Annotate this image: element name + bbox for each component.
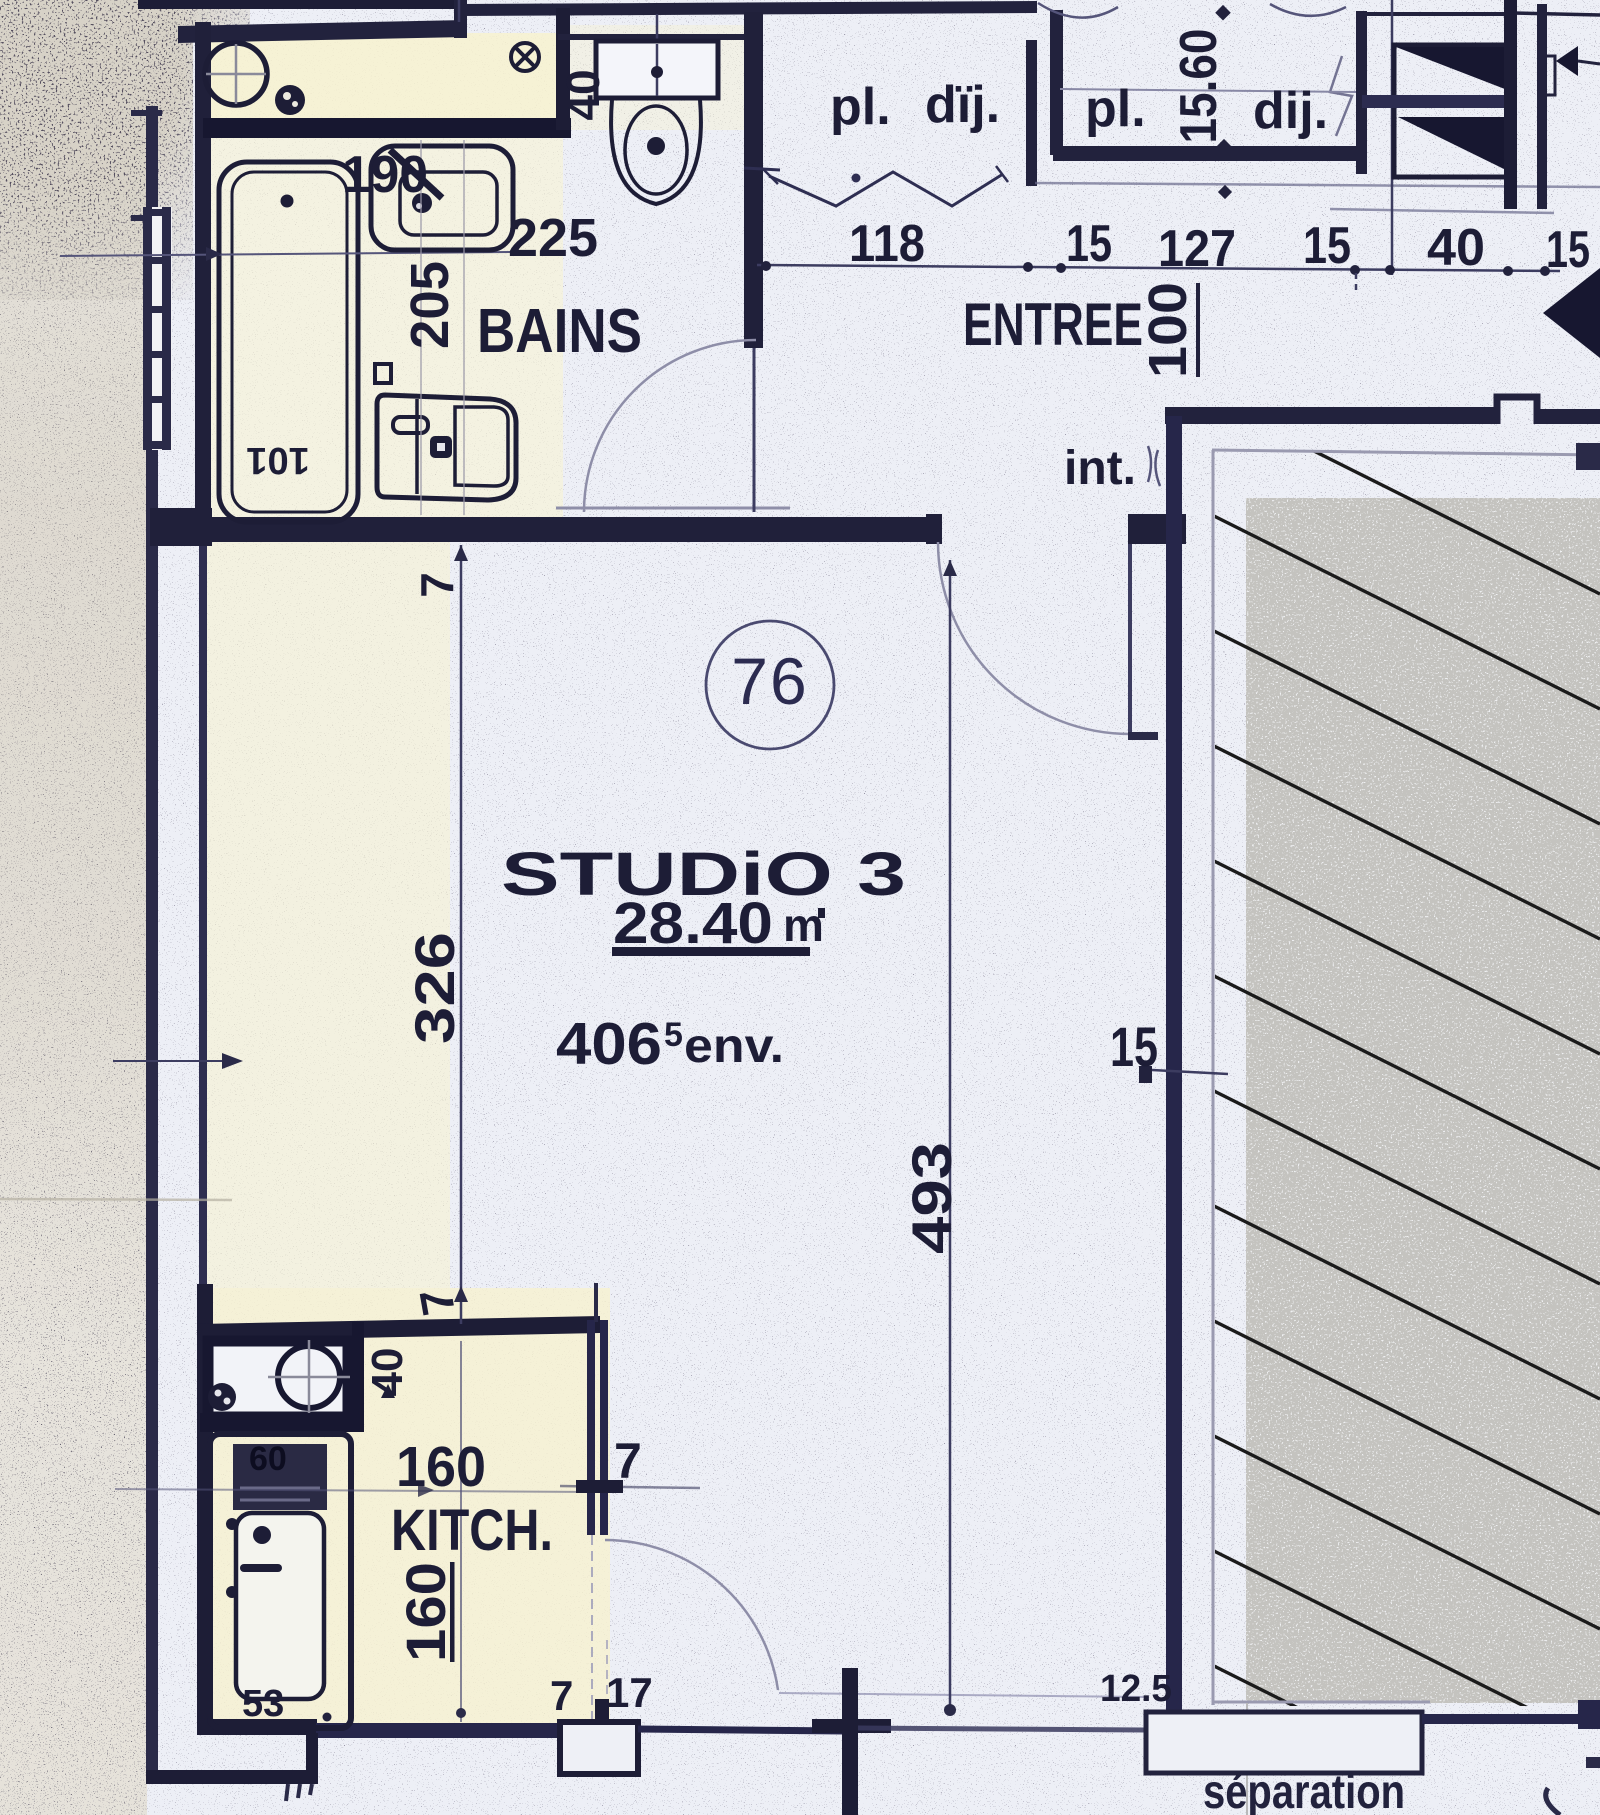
svg-text:pl.: pl. <box>830 78 891 136</box>
svg-text:15: 15 <box>1066 215 1112 273</box>
svg-text:101: 101 <box>246 439 309 481</box>
svg-text:12.5: 12.5 <box>1100 1668 1172 1710</box>
svg-text:76: 76 <box>731 644 808 718</box>
svg-text:53: 53 <box>242 1683 284 1725</box>
svg-text:KITCH.: KITCH. <box>391 1498 553 1563</box>
svg-text:m: m <box>783 899 824 951</box>
svg-text:15: 15 <box>1110 1015 1158 1078</box>
svg-text:dij.: dij. <box>1253 82 1328 140</box>
svg-text:40: 40 <box>557 69 609 120</box>
svg-text:28.40: 28.40 <box>613 891 773 956</box>
svg-text:225: 225 <box>508 208 598 268</box>
svg-text:15: 15 <box>1546 221 1590 279</box>
svg-text:160: 160 <box>396 1435 486 1499</box>
svg-text:int.: int. <box>1064 442 1136 495</box>
svg-text:15.60: 15.60 <box>1170 29 1228 144</box>
svg-text:190: 190 <box>342 146 428 204</box>
svg-text:15: 15 <box>1303 217 1351 275</box>
svg-text:100: 100 <box>1138 282 1198 378</box>
svg-text:160: 160 <box>394 1562 457 1662</box>
svg-text:127: 127 <box>1158 220 1236 278</box>
svg-text:7: 7 <box>550 1672 573 1719</box>
svg-text:60: 60 <box>249 1440 287 1478</box>
svg-text:env.: env. <box>684 1020 784 1073</box>
svg-text:17: 17 <box>606 1669 653 1716</box>
svg-text:118: 118 <box>849 215 925 273</box>
svg-text:pl.: pl. <box>1085 80 1146 138</box>
svg-text:BAINS: BAINS <box>477 297 642 366</box>
svg-text:5: 5 <box>664 1016 683 1054</box>
svg-text:séparation: séparation <box>1203 1766 1405 1815</box>
svg-text:dïj.: dïj. <box>925 76 1000 134</box>
svg-text:40: 40 <box>1427 219 1485 277</box>
svg-text:493: 493 <box>900 1142 963 1254</box>
svg-text:205: 205 <box>400 261 460 349</box>
svg-text:7: 7 <box>411 572 463 598</box>
svg-text:326: 326 <box>403 932 466 1044</box>
svg-text:406: 406 <box>556 1011 662 1077</box>
svg-text:ENTREE: ENTREE <box>963 291 1143 358</box>
